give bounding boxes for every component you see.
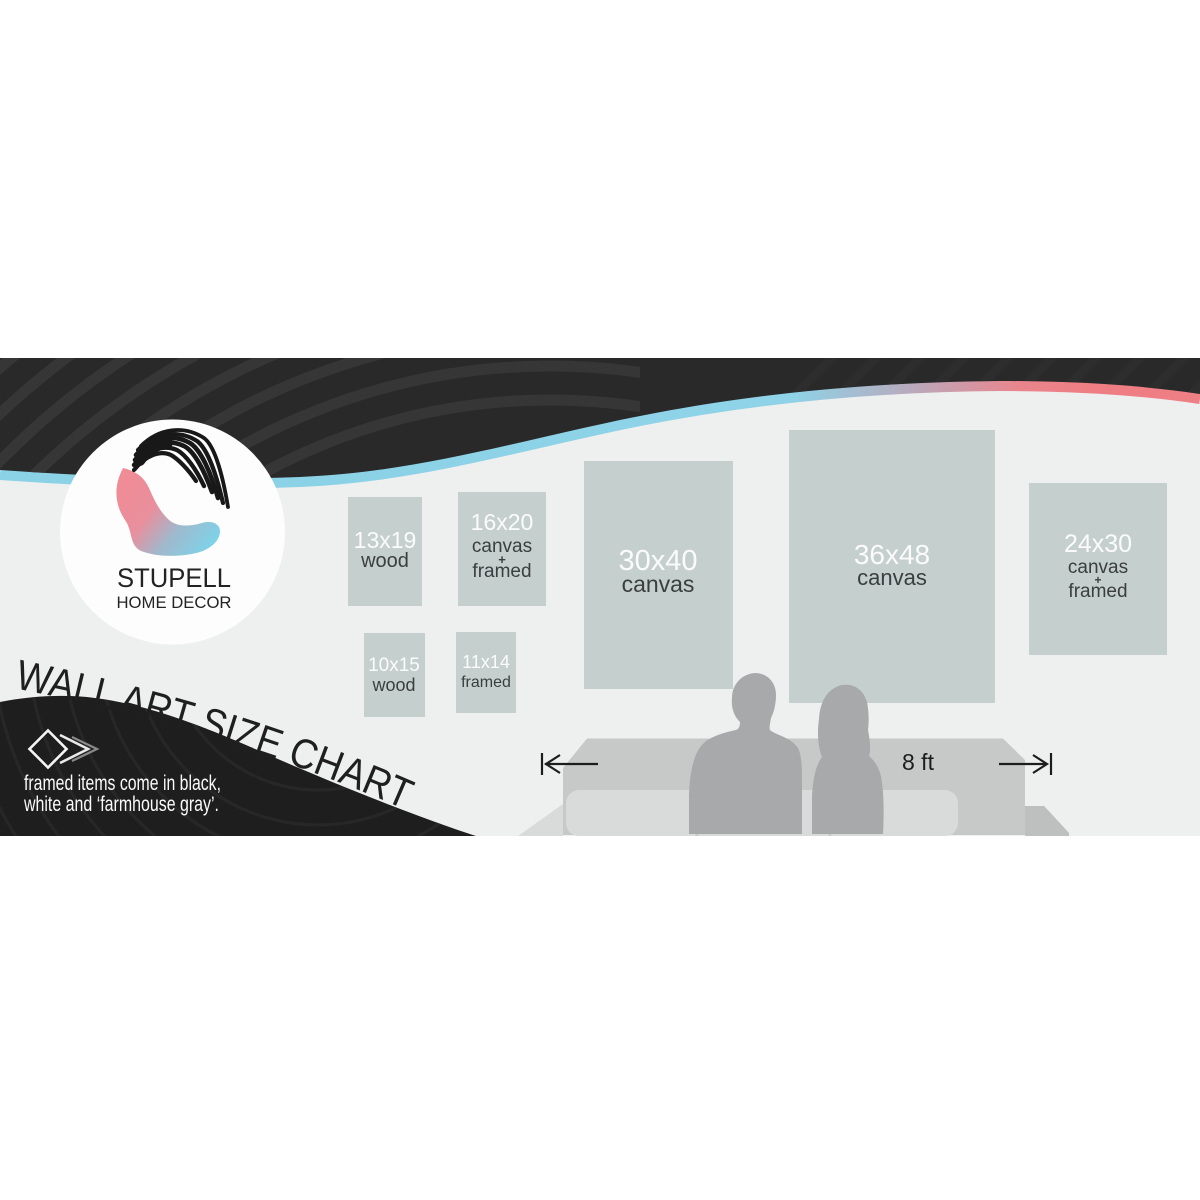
svg-text:framed: framed [461,674,511,691]
svg-text:framed: framed [1068,581,1127,602]
svg-text:16x20: 16x20 [471,509,534,535]
svg-text:HOME DECOR: HOME DECOR [117,593,232,612]
svg-text:8 ft: 8 ft [902,749,935,775]
svg-text:wood: wood [360,550,409,572]
svg-text:24x30: 24x30 [1064,530,1132,558]
svg-text:10x15: 10x15 [368,655,420,676]
svg-text:11x14: 11x14 [462,652,510,672]
svg-text:white and ‘farmhouse gray’.: white and ‘farmhouse gray’. [23,793,219,816]
svg-text:canvas: canvas [857,565,927,590]
svg-text:framed: framed [472,561,531,582]
svg-text:framed items come in black,: framed items come in black, [24,772,221,795]
svg-text:canvas: canvas [622,571,695,597]
svg-text:wood: wood [371,675,415,695]
svg-text:STUPELL: STUPELL [117,563,231,593]
